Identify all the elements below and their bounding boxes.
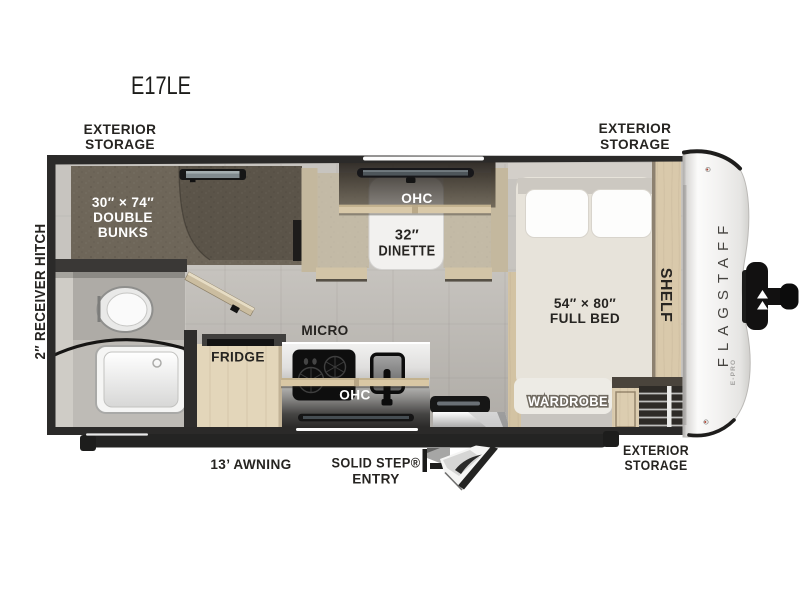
svg-text:ENTRY: ENTRY (352, 472, 400, 487)
svg-text:E17LE: E17LE (131, 72, 191, 100)
svg-text:EXTERIOR: EXTERIOR (84, 122, 157, 137)
svg-text:EXTERIOR: EXTERIOR (623, 443, 689, 458)
svg-text:54″ × 80″: 54″ × 80″ (554, 296, 616, 311)
svg-text:FULL BED: FULL BED (550, 311, 620, 326)
svg-text:WARDROBE: WARDROBE (528, 394, 608, 409)
svg-text:13’ AWNING: 13’ AWNING (210, 457, 291, 472)
svg-text:OHC: OHC (401, 191, 432, 206)
svg-text:30″ × 74″: 30″ × 74″ (92, 195, 154, 210)
svg-text:EXTERIOR: EXTERIOR (599, 121, 672, 136)
svg-text:STORAGE: STORAGE (85, 137, 155, 152)
svg-text:BUNKS: BUNKS (98, 225, 148, 240)
svg-text:OHC: OHC (339, 388, 370, 403)
svg-text:DOUBLE: DOUBLE (93, 210, 153, 225)
svg-text:32″: 32″ (395, 228, 419, 244)
svg-text:FLAGSTAFF: FLAGSTAFF (715, 219, 732, 368)
svg-text:DINETTE: DINETTE (379, 244, 436, 260)
svg-text:FRIDGE: FRIDGE (211, 350, 265, 365)
svg-text:SOLID STEP®: SOLID STEP® (332, 456, 421, 471)
svg-text:SHELF: SHELF (657, 268, 674, 322)
svg-text:STORAGE: STORAGE (600, 137, 670, 152)
svg-text:MICRO: MICRO (301, 323, 348, 338)
svg-text:STORAGE: STORAGE (625, 458, 688, 473)
svg-text:E-PRO: E-PRO (730, 359, 737, 386)
svg-text:2″ RECEIVER HITCH: 2″ RECEIVER HITCH (32, 224, 49, 360)
